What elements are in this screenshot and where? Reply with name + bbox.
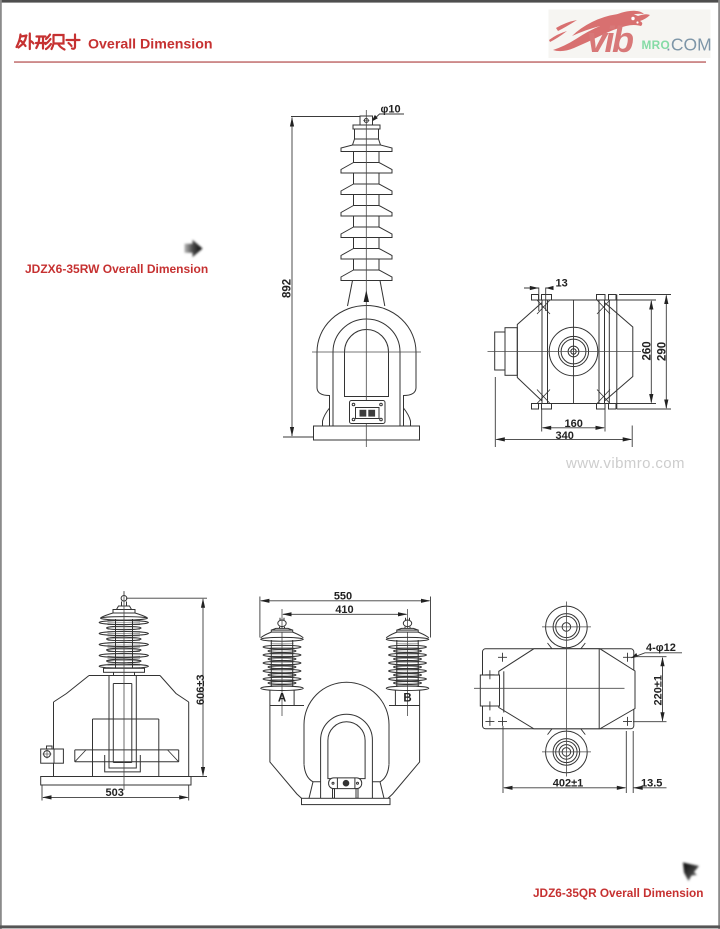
svg-text:JDZX6-35RW Overall Dimension: JDZX6-35RW Overall Dimension	[25, 262, 208, 276]
svg-text:4-φ12: 4-φ12	[646, 642, 676, 654]
svg-text:13.5: 13.5	[641, 778, 662, 790]
svg-text:A: A	[278, 692, 286, 704]
svg-text:550: 550	[334, 591, 352, 603]
svg-text:www.vibmro.com: www.vibmro.com	[565, 455, 685, 472]
svg-text:Overall Dimension: Overall Dimension	[88, 37, 213, 53]
svg-text:JDZ6-35QR Overall Dimension: JDZ6-35QR Overall Dimension	[533, 886, 703, 900]
svg-text:402±1: 402±1	[553, 778, 584, 790]
svg-text:290: 290	[656, 342, 668, 361]
svg-text:160: 160	[565, 418, 583, 430]
svg-text:340: 340	[556, 430, 574, 442]
svg-text:vib: vib	[587, 19, 633, 60]
svg-text:13: 13	[556, 278, 568, 290]
svg-text:260: 260	[641, 341, 653, 360]
svg-text:503: 503	[106, 787, 124, 799]
svg-text:892: 892	[282, 279, 294, 298]
svg-text:220±1: 220±1	[652, 675, 664, 706]
svg-text:.COM: .COM	[666, 35, 712, 55]
svg-text:606±3: 606±3	[195, 674, 207, 705]
svg-text:410: 410	[335, 604, 353, 616]
svg-text:B: B	[403, 692, 411, 704]
